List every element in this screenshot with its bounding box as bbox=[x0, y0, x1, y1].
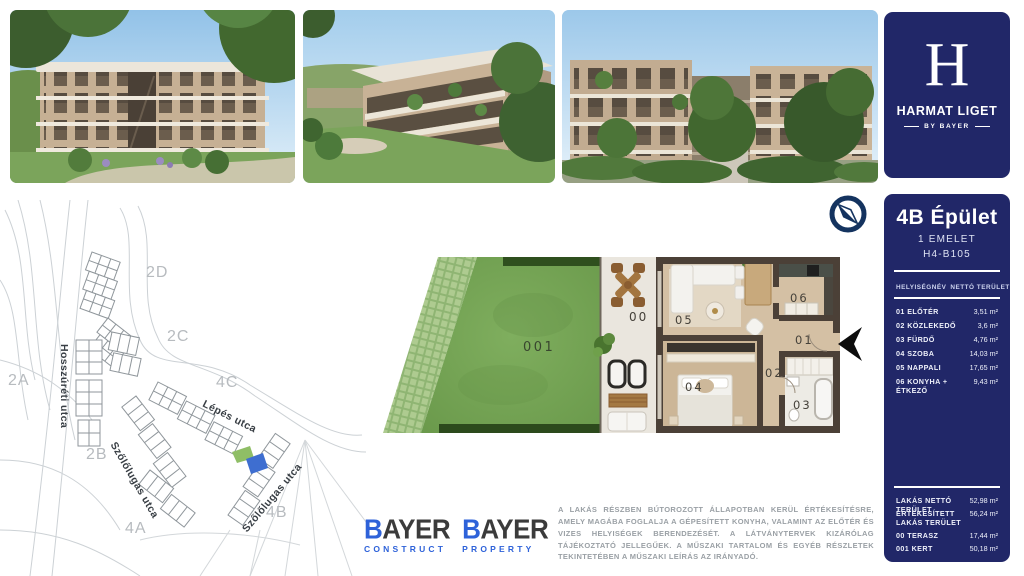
legal-disclaimer: A LAKÁS RÉSZBEN BÚTOROZOTT ÁLLAPOTBAN KE… bbox=[558, 504, 874, 563]
divider bbox=[894, 486, 1000, 488]
room-row: 03 FÜRDŐ 4,76 m² bbox=[896, 335, 998, 344]
bayer-division: CONSTRUCT bbox=[364, 544, 450, 554]
bayer-division: PROPERTY bbox=[462, 544, 548, 554]
total-row: 001 KERT 50,18 m² bbox=[896, 544, 998, 553]
bayer-rest: AYER bbox=[480, 513, 548, 545]
room-row: 02 KÖZLEKEDŐ 3,6 m² bbox=[896, 321, 998, 330]
street-label-hosszureti: Hosszúréti utca bbox=[58, 344, 70, 428]
bayer-construct-logo: BAYER CONSTRUCT bbox=[364, 517, 450, 554]
total-row: 00 TERASZ 17,44 m² bbox=[896, 531, 998, 540]
building-render-2-illustration bbox=[303, 10, 555, 183]
brand-logo-panel: H HARMAT LIGET BY BAYER bbox=[884, 12, 1010, 178]
entry-label: 01 bbox=[795, 333, 814, 347]
room-area: 3,51 m² bbox=[974, 307, 998, 316]
datasheet-page: H HARMAT LIGET BY BAYER 4B Épület 1 EMEL… bbox=[0, 0, 1024, 576]
bayer-initial: B bbox=[364, 513, 382, 545]
unit-floor: 1 EMELET bbox=[884, 234, 1010, 245]
col-room-name: HELYISÉGNÉV bbox=[896, 284, 946, 291]
footer-logos: BAYER CONSTRUCT BAYER PROPERTY bbox=[364, 517, 548, 554]
brand-name: HARMAT LIGET bbox=[897, 104, 998, 118]
total-name: 00 TERASZ bbox=[896, 531, 966, 540]
bedroom-label: 04 bbox=[685, 380, 704, 394]
block-label-2a: 2A bbox=[8, 372, 30, 390]
room-row: 01 ELŐTÉR 3,51 m² bbox=[896, 307, 998, 316]
byline-text: BY BAYER bbox=[924, 123, 970, 130]
room-row: 05 NAPPALI 17,65 m² bbox=[896, 363, 998, 372]
total-area: 52,98 m² bbox=[970, 496, 998, 505]
room-name: 05 NAPPALI bbox=[896, 363, 941, 372]
byline-rule-right bbox=[975, 126, 990, 128]
divider bbox=[894, 297, 1000, 299]
bayer-initial: B bbox=[462, 513, 480, 545]
total-name: 001 KERT bbox=[896, 544, 966, 553]
room-table-header: HELYISÉGNÉV NETTÓ TERÜLET bbox=[896, 284, 998, 291]
total-name: ÉRTÉKESÍTETT LAKÁS TERÜLET bbox=[896, 509, 966, 527]
hall-label: 02 bbox=[765, 366, 784, 380]
brand-monogram: H bbox=[925, 34, 970, 96]
room-name: 01 ELŐTÉR bbox=[896, 307, 939, 316]
bayer-rest: AYER bbox=[382, 513, 450, 545]
site-map-drawing bbox=[0, 200, 372, 576]
block-label-2b: 2B bbox=[86, 446, 108, 464]
unit-id: H4-B105 bbox=[884, 249, 1010, 260]
room-name: 03 FÜRDŐ bbox=[896, 335, 935, 344]
block-label-2c: 2C bbox=[167, 328, 189, 346]
terrace-label: 00 bbox=[629, 310, 648, 324]
room-name: 04 SZOBA bbox=[896, 349, 934, 358]
room-area: 9,43 m² bbox=[974, 377, 998, 386]
block-label-4c: 4C bbox=[216, 374, 238, 392]
terrace-lounge-set bbox=[608, 361, 647, 431]
kitchen-label: 06 bbox=[790, 291, 809, 305]
room-name: 06 KONYHA + ÉTKEZŐ bbox=[896, 377, 970, 395]
room-name: 02 KÖZLEKEDŐ bbox=[896, 321, 956, 330]
total-row: ÉRTÉKESÍTETT LAKÁS TERÜLET 56,24 m² bbox=[896, 509, 998, 527]
building-render-2 bbox=[303, 10, 555, 183]
col-net-area: NETTÓ TERÜLET bbox=[950, 284, 1009, 291]
building-render-1 bbox=[10, 10, 295, 183]
total-area: 17,44 m² bbox=[970, 531, 998, 540]
brand-byline: BY BAYER bbox=[904, 123, 990, 130]
entry-arrow-icon bbox=[838, 327, 862, 361]
total-area: 56,24 m² bbox=[970, 509, 998, 518]
room-area: 4,76 m² bbox=[974, 335, 998, 344]
building-render-3 bbox=[562, 10, 878, 183]
room-row: 04 SZOBA 14,03 m² bbox=[896, 349, 998, 358]
room-area: 17,65 m² bbox=[970, 363, 998, 372]
room-area: 3,6 m² bbox=[978, 321, 998, 330]
unit-building-title: 4B Épület bbox=[884, 206, 1010, 230]
building-render-1-illustration bbox=[10, 10, 295, 183]
bayer-property-logo: BAYER PROPERTY bbox=[462, 517, 548, 554]
bayer-wordmark: BAYER bbox=[364, 516, 450, 542]
floor-plan: 001 bbox=[383, 255, 861, 435]
divider bbox=[894, 270, 1000, 272]
building-render-3-illustration bbox=[562, 10, 878, 183]
block-label-4a: 4A bbox=[125, 520, 147, 538]
bath-label: 03 bbox=[793, 398, 812, 412]
room-row: 06 KONYHA + ÉTKEZŐ 9,43 m² bbox=[896, 377, 998, 395]
block-label-2d: 2D bbox=[146, 264, 168, 282]
compass-icon bbox=[827, 193, 869, 235]
unit-info-panel: 4B Épület 1 EMELET H4-B105 HELYISÉGNÉV N… bbox=[884, 194, 1010, 562]
byline-rule-left bbox=[904, 126, 919, 128]
garden-label: 001 bbox=[523, 340, 555, 355]
total-area: 50,18 m² bbox=[970, 544, 998, 553]
living-label: 05 bbox=[675, 313, 694, 327]
floor-plan-drawing: 001 bbox=[383, 255, 861, 435]
site-map: 2D 2C 2A 4C 2B 4A 4B Hosszúréti utca Lép… bbox=[0, 200, 372, 576]
room-area: 14,03 m² bbox=[970, 349, 998, 358]
bayer-wordmark: BAYER bbox=[462, 516, 548, 542]
